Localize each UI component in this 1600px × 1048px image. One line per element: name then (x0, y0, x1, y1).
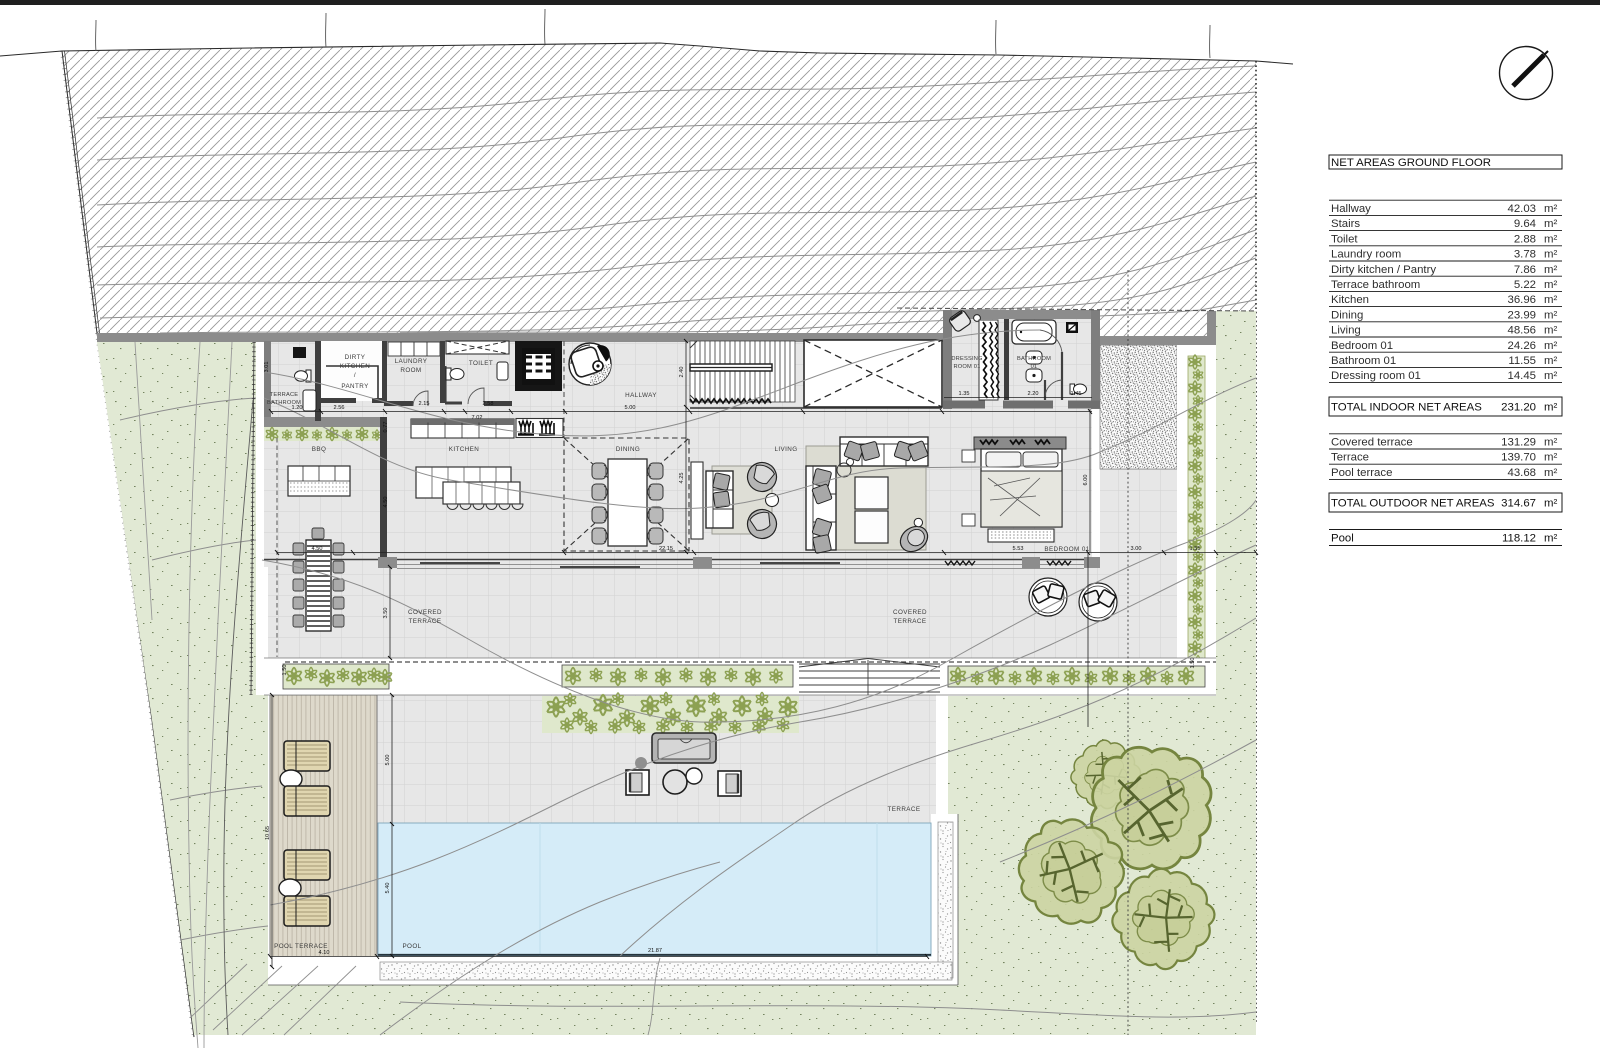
svg-text:TERRACE: TERRACE (894, 618, 927, 625)
svg-text:KITCHEN: KITCHEN (340, 363, 370, 370)
svg-text:6.00: 6.00 (1083, 475, 1089, 486)
svg-text:DIRTY: DIRTY (345, 354, 366, 361)
svg-text:5.00: 5.00 (385, 755, 391, 766)
svg-text:118.12: 118.12 (1502, 533, 1536, 545)
svg-text:9.64: 9.64 (1514, 218, 1536, 230)
svg-text:01: 01 (1031, 364, 1038, 370)
svg-text:BEDROOM 01: BEDROOM 01 (1044, 546, 1089, 553)
svg-text:4.10: 4.10 (319, 950, 330, 956)
svg-text:4.50: 4.50 (383, 497, 389, 508)
svg-text:Pool: Pool (1331, 533, 1354, 545)
svg-text:m²: m² (1544, 467, 1557, 479)
svg-text:m²: m² (1544, 218, 1557, 230)
svg-text:ROOM: ROOM (400, 367, 421, 374)
svg-text:m²: m² (1544, 325, 1557, 337)
svg-text:COVERED: COVERED (408, 609, 442, 616)
svg-text:5.22: 5.22 (1514, 279, 1536, 291)
svg-text:4.25: 4.25 (679, 473, 685, 484)
svg-text:2.58: 2.58 (483, 401, 494, 407)
svg-text:Kitchen: Kitchen (1331, 294, 1369, 306)
svg-text:HALLWAY: HALLWAY (625, 392, 657, 399)
svg-text:10.65: 10.65 (265, 826, 271, 840)
svg-text:48.56: 48.56 (1507, 325, 1536, 337)
svg-text:1.55: 1.55 (1190, 546, 1201, 552)
svg-text:Pool terrace: Pool terrace (1331, 467, 1392, 479)
svg-text:KITCHEN: KITCHEN (449, 446, 479, 453)
svg-text:m²: m² (1544, 498, 1557, 510)
svg-text:1.45: 1.45 (1071, 391, 1082, 397)
svg-text:2.40: 2.40 (679, 367, 685, 378)
svg-text:NET AREAS GROUND FLOOR: NET AREAS GROUND FLOOR (1331, 157, 1491, 169)
svg-text:Terrace bathroom: Terrace bathroom (1331, 279, 1420, 291)
svg-text:Dressing room 01: Dressing room 01 (1331, 370, 1421, 382)
svg-text:BBQ: BBQ (312, 446, 327, 453)
svg-text:1.50: 1.50 (1190, 658, 1196, 669)
svg-text:22.15: 22.15 (659, 546, 673, 552)
svg-text:7.02: 7.02 (472, 415, 483, 421)
svg-text:131.29: 131.29 (1501, 437, 1536, 449)
svg-text:TOTAL OUTDOOR NET AREAS: TOTAL OUTDOOR NET AREAS (1331, 498, 1495, 510)
svg-text:Stairs: Stairs (1331, 218, 1360, 230)
svg-text:2.15: 2.15 (419, 401, 430, 407)
svg-text:m²: m² (1544, 340, 1557, 352)
svg-text:24.26: 24.26 (1507, 340, 1536, 352)
svg-text:139.70: 139.70 (1501, 452, 1536, 464)
svg-text:LIVING: LIVING (774, 446, 797, 453)
svg-text:Dirty kitchen / Pantry: Dirty kitchen / Pantry (1331, 264, 1436, 276)
svg-text:BATHROOM: BATHROOM (1017, 356, 1051, 362)
svg-text:DRESSING: DRESSING (951, 356, 982, 362)
svg-text:Living: Living (1331, 325, 1361, 337)
svg-text:21.87: 21.87 (648, 948, 662, 954)
svg-text:Terrace: Terrace (1331, 452, 1369, 464)
svg-text:/: / (354, 372, 356, 379)
svg-text:m²: m² (1544, 533, 1557, 545)
svg-text:POOL TERRACE: POOL TERRACE (274, 943, 328, 950)
svg-text:2.20: 2.20 (1028, 391, 1039, 397)
svg-text:1.50: 1.50 (282, 665, 288, 676)
svg-text:TERRACE: TERRACE (270, 392, 299, 398)
svg-text:3.78: 3.78 (1514, 249, 1536, 261)
svg-text:m²: m² (1544, 452, 1557, 464)
svg-text:TOILET: TOILET (469, 360, 493, 367)
svg-text:ROOM 01: ROOM 01 (954, 364, 981, 370)
svg-text:1.20: 1.20 (292, 405, 303, 411)
svg-text:Laundry room: Laundry room (1331, 249, 1401, 261)
svg-text:5.53: 5.53 (1013, 546, 1024, 552)
svg-text:Covered terrace: Covered terrace (1331, 437, 1413, 449)
svg-text:1.35: 1.35 (959, 391, 970, 397)
svg-text:m²: m² (1544, 279, 1557, 291)
svg-text:m²: m² (1544, 294, 1557, 306)
svg-text:m²: m² (1544, 203, 1557, 215)
svg-text:314.67: 314.67 (1501, 498, 1536, 510)
svg-text:14.45: 14.45 (1507, 370, 1536, 382)
svg-text:m²: m² (1544, 402, 1557, 414)
svg-text:m²: m² (1544, 233, 1557, 245)
svg-text:m²: m² (1544, 370, 1557, 382)
svg-text:0.77: 0.77 (383, 422, 389, 433)
svg-text:m²: m² (1544, 355, 1557, 367)
svg-text:7.86: 7.86 (1514, 264, 1536, 276)
svg-text:COVERED: COVERED (893, 609, 927, 616)
svg-text:3.50: 3.50 (383, 608, 389, 619)
svg-text:Bathroom 01: Bathroom 01 (1331, 355, 1396, 367)
svg-text:TOTAL INDOOR NET AREAS: TOTAL INDOOR NET AREAS (1331, 402, 1482, 414)
svg-text:2.56: 2.56 (334, 405, 345, 411)
svg-text:PANTRY: PANTRY (341, 383, 369, 390)
svg-text:TERRACE: TERRACE (888, 806, 921, 813)
svg-text:5.40: 5.40 (385, 883, 391, 894)
svg-text:2.88: 2.88 (1514, 233, 1536, 245)
svg-text:Hallway: Hallway (1331, 203, 1371, 215)
svg-text:POOL: POOL (402, 943, 421, 950)
svg-text:11.55: 11.55 (1508, 355, 1536, 367)
svg-text:Dining: Dining (1331, 309, 1363, 321)
svg-text:5.00: 5.00 (625, 405, 636, 411)
svg-text:42.03: 42.03 (1507, 203, 1536, 215)
svg-text:m²: m² (1544, 437, 1557, 449)
svg-text:m²: m² (1544, 309, 1557, 321)
svg-text:Bedroom 01: Bedroom 01 (1331, 340, 1393, 352)
svg-text:4.50: 4.50 (312, 546, 323, 552)
svg-text:231.20: 231.20 (1501, 402, 1536, 414)
svg-text:Toilet: Toilet (1331, 233, 1358, 245)
svg-text:m²: m² (1544, 249, 1557, 261)
svg-text:LAUNDRY: LAUNDRY (395, 358, 428, 365)
svg-text:DINING: DINING (616, 446, 640, 453)
svg-text:3.01: 3.01 (264, 362, 270, 373)
svg-text:43.68: 43.68 (1507, 467, 1536, 479)
svg-text:23.99: 23.99 (1507, 309, 1536, 321)
svg-text:36.96: 36.96 (1507, 294, 1536, 306)
svg-text:m²: m² (1544, 264, 1557, 276)
svg-text:3.00: 3.00 (1131, 546, 1142, 552)
svg-text:TERRACE: TERRACE (409, 618, 442, 625)
